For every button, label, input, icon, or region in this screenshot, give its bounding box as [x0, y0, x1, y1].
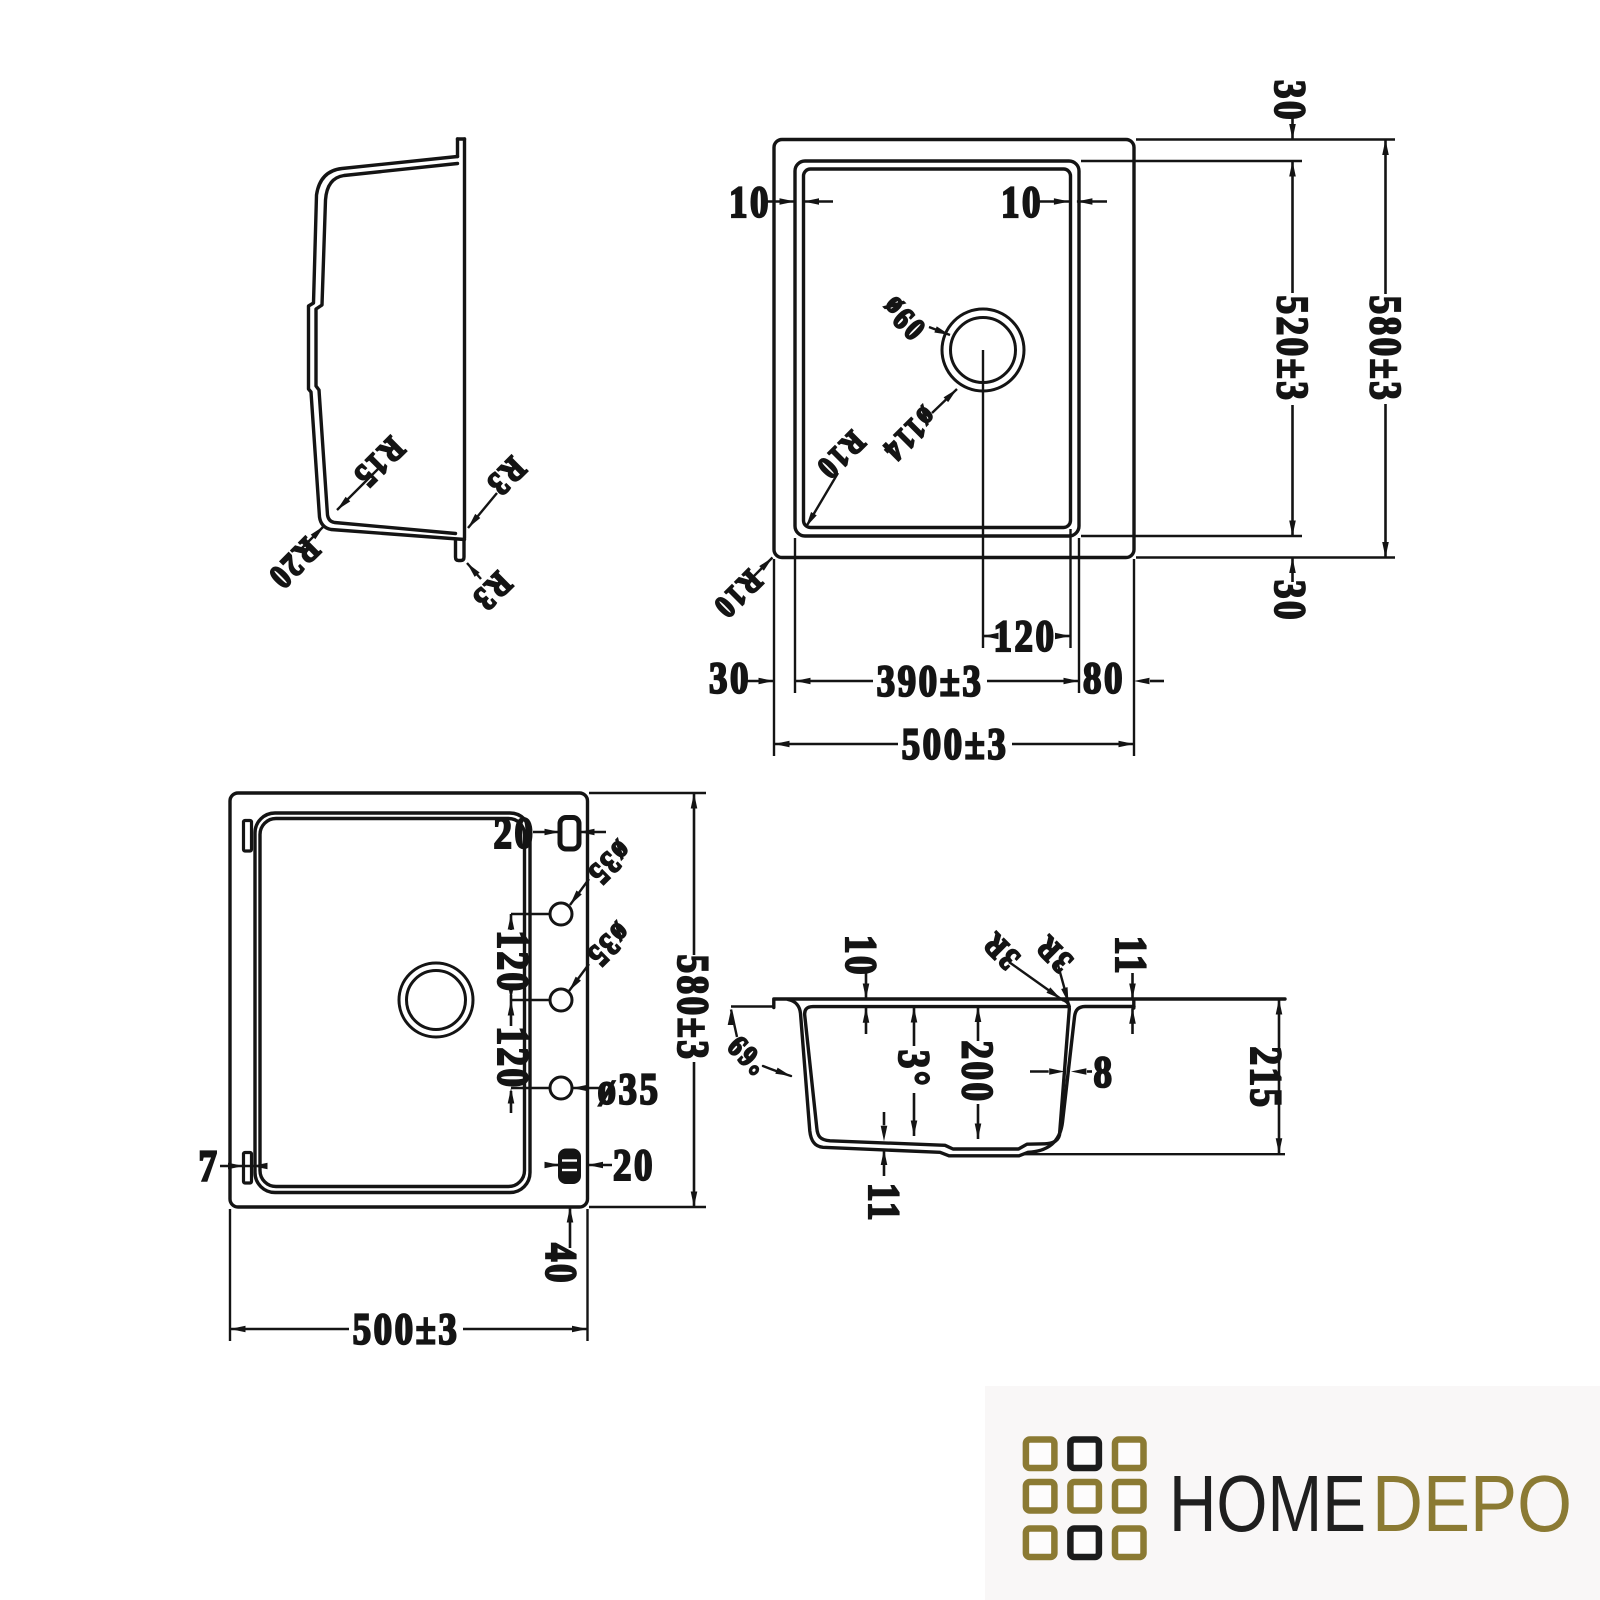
svg-text:200: 200 [953, 1041, 1002, 1104]
svg-text:20: 20 [613, 1141, 655, 1190]
svg-text:DEPO: DEPO [1372, 1459, 1572, 1548]
svg-text:120: 120 [489, 1027, 538, 1090]
svg-text:30: 30 [709, 654, 751, 703]
svg-text:120: 120 [489, 931, 538, 994]
svg-text:3°: 3° [890, 1050, 939, 1088]
svg-text:580±3: 580±3 [669, 955, 718, 1062]
svg-text:10: 10 [837, 935, 886, 977]
svg-text:30: 30 [1266, 80, 1315, 122]
svg-text:80: 80 [1083, 654, 1125, 703]
svg-text:215: 215 [1242, 1047, 1291, 1110]
svg-text:10: 10 [729, 178, 771, 227]
svg-text:8: 8 [1093, 1048, 1114, 1097]
svg-text:11: 11 [1107, 936, 1156, 976]
svg-text:30: 30 [1266, 580, 1315, 622]
svg-text:390±3: 390±3 [877, 657, 984, 706]
svg-text:11: 11 [860, 1183, 909, 1223]
svg-text:HOME: HOME [1169, 1459, 1366, 1548]
svg-text:40: 40 [537, 1243, 586, 1285]
svg-text:7: 7 [198, 1142, 219, 1191]
svg-text:ø35: ø35 [598, 1065, 661, 1114]
svg-text:520±3: 520±3 [1268, 296, 1317, 403]
svg-text:500±3: 500±3 [902, 720, 1009, 769]
svg-text:20: 20 [494, 809, 536, 858]
svg-text:10: 10 [1001, 178, 1043, 227]
svg-text:580±3: 580±3 [1361, 296, 1410, 403]
svg-text:500±3: 500±3 [353, 1305, 460, 1354]
svg-text:120: 120 [994, 612, 1057, 661]
